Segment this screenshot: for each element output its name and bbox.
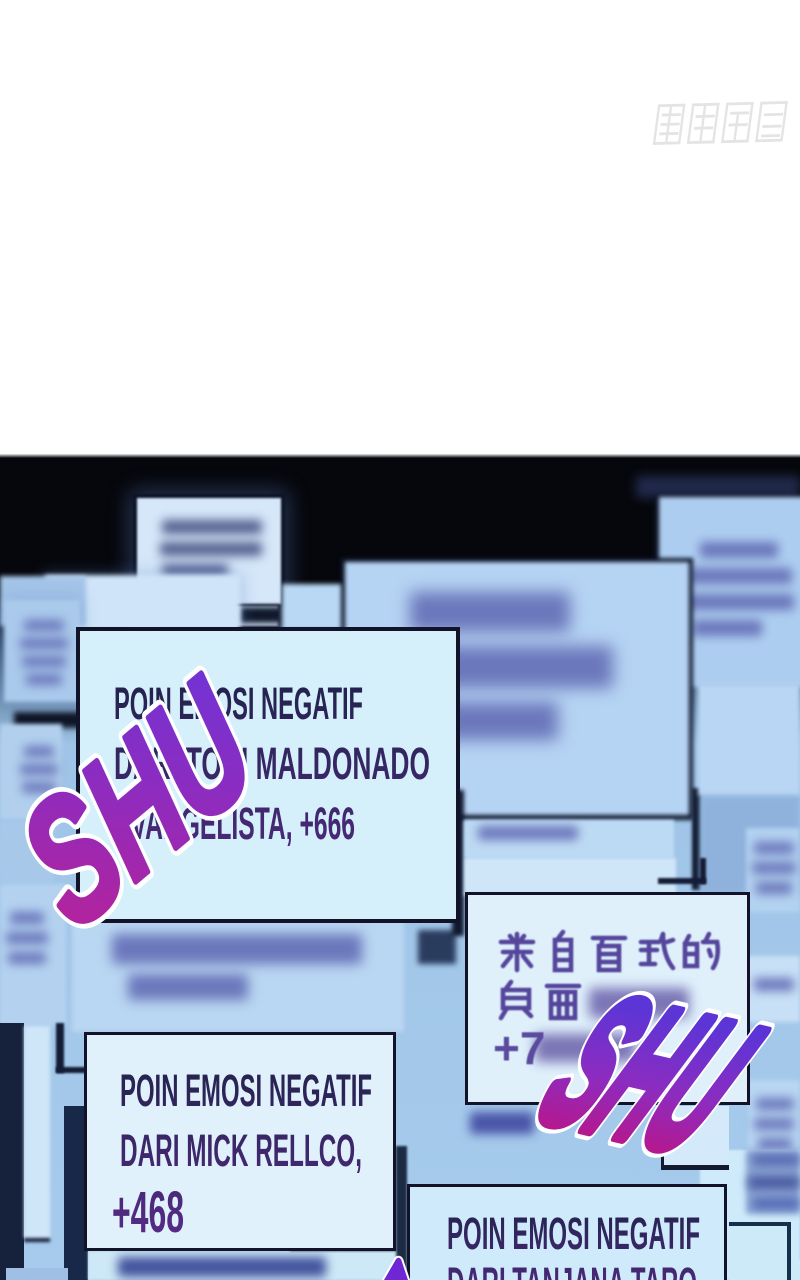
svg-text:+468: +468 bbox=[112, 1180, 184, 1245]
svg-text:SHU: SHU bbox=[0, 641, 284, 964]
svg-text:POIN EMOSI NEGATIF: POIN EMOSI NEGATIF bbox=[447, 1208, 700, 1259]
svg-text:SHU: SHU bbox=[508, 960, 791, 1189]
svg-text:POIN EMOSI NEGATIF: POIN EMOSI NEGATIF bbox=[120, 1065, 372, 1116]
svg-text:DARI MICK RELLCO,: DARI MICK RELLCO, bbox=[120, 1125, 362, 1176]
svg-text:DARI TANJANA TARO: DARI TANJANA TARO bbox=[447, 1258, 697, 1280]
